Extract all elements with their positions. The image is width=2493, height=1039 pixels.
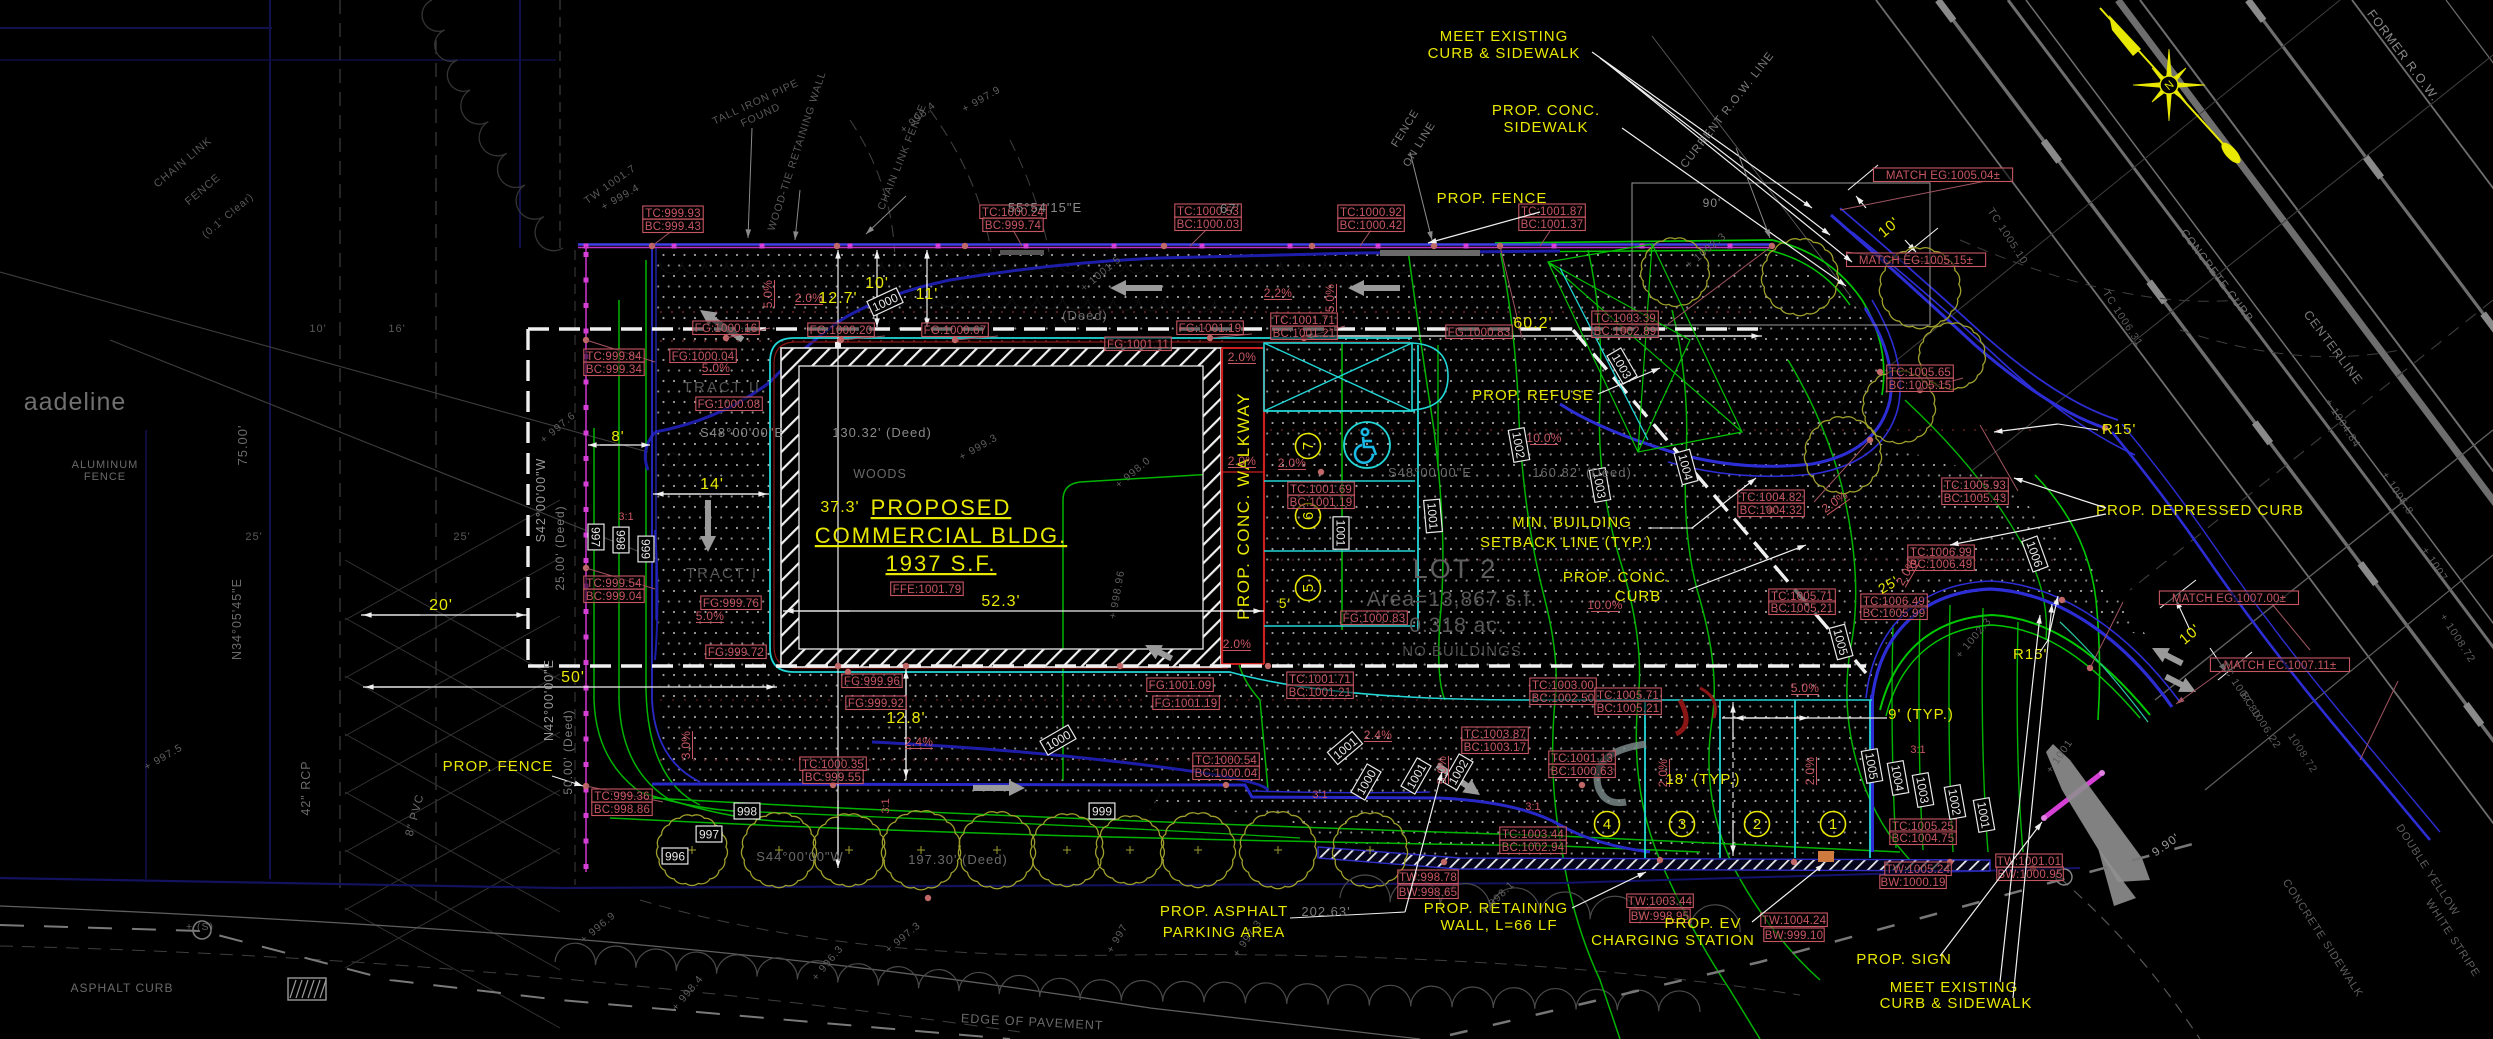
svg-text:BC:1001.21: BC:1001.21	[1273, 328, 1336, 340]
svg-text:MATCH EG:1005.04±: MATCH EG:1005.04±	[1886, 170, 2000, 182]
svg-text:997: 997	[589, 527, 603, 547]
svg-text:TC:1001.71: TC:1001.71	[1289, 674, 1351, 686]
svg-text:67': 67'	[1220, 201, 1240, 216]
svg-text:TC:1005.71: TC:1005.71	[1597, 690, 1659, 702]
svg-text:3:1: 3:1	[1525, 801, 1540, 813]
svg-text:5.0%: 5.0%	[761, 280, 775, 309]
svg-text:PROPOSED: PROPOSED	[871, 495, 1012, 520]
svg-text:PROP. FENCE: PROP. FENCE	[1437, 190, 1548, 207]
svg-text:5.0%: 5.0%	[696, 609, 725, 623]
svg-text:5: 5	[1300, 584, 1317, 592]
svg-text:TW:998.78: TW:998.78	[1399, 872, 1457, 884]
svg-text:TW:1005.24: TW:1005.24	[1886, 864, 1951, 876]
svg-text:TRACT I: TRACT I	[686, 565, 758, 582]
svg-text:TW:1001.01: TW:1001.01	[1997, 856, 2061, 868]
svg-text:S42°00'00"W: S42°00'00"W	[534, 458, 548, 543]
svg-text:ASPHALT CURB: ASPHALT CURB	[71, 981, 174, 995]
svg-text:TC:1003.00: TC:1003.00	[1532, 680, 1594, 692]
svg-text:MATCH EG:1007.00±: MATCH EG:1007.00±	[2172, 593, 2286, 605]
svg-text:BC:998.86: BC:998.86	[594, 804, 650, 816]
svg-text:2.0%: 2.0%	[1278, 456, 1307, 470]
svg-text:55°54'15"E: 55°54'15"E	[1008, 200, 1082, 215]
svg-text:S44°00'00"W: S44°00'00"W	[756, 849, 844, 864]
svg-text:BC:1002.94: BC:1002.94	[1502, 842, 1565, 854]
svg-text:TC:1005.93: TC:1005.93	[1944, 480, 2006, 492]
svg-text:FENCE: FENCE	[84, 471, 126, 483]
svg-text:BC:999.55: BC:999.55	[805, 772, 861, 784]
svg-text:BC:1005.15: BC:1005.15	[1889, 380, 1952, 392]
svg-text:BC:999.04: BC:999.04	[586, 591, 643, 603]
svg-text:FG:999.72: FG:999.72	[708, 647, 764, 659]
svg-text:TRACT II: TRACT II	[683, 379, 761, 396]
svg-text:PROP. EV: PROP. EV	[1665, 915, 1742, 932]
svg-text:10.0%: 10.0%	[1526, 431, 1562, 445]
svg-text:WALL, L=66 LF: WALL, L=66 LF	[1440, 917, 1557, 934]
svg-text:1937 S.F.: 1937 S.F.	[886, 551, 997, 576]
svg-text:TC:1003.44: TC:1003.44	[1502, 829, 1564, 841]
svg-text:BC:1005.21: BC:1005.21	[1597, 703, 1660, 715]
svg-text:TC:1003.39: TC:1003.39	[1594, 313, 1656, 325]
svg-text:BC:1002.50: BC:1002.50	[1532, 693, 1595, 705]
svg-text:FG:1001.19: FG:1001.19	[1155, 698, 1218, 710]
svg-text:999: 999	[639, 539, 653, 559]
svg-text:FG:1001.19: FG:1001.19	[1179, 323, 1242, 335]
svg-text:8': 8'	[611, 428, 624, 445]
svg-text:25': 25'	[245, 531, 262, 543]
svg-text:TC:999.93: TC:999.93	[645, 208, 701, 220]
svg-text:SETBACK LINE (TYP.): SETBACK LINE (TYP.)	[1480, 534, 1652, 551]
svg-text:BC:1005.21: BC:1005.21	[1771, 603, 1834, 615]
svg-text:997: 997	[699, 828, 719, 842]
svg-text:MATCH EG:1005.15±: MATCH EG:1005.15±	[1859, 255, 1973, 267]
svg-text:3:1: 3:1	[1910, 744, 1925, 756]
svg-text:MEET EXISTING: MEET EXISTING	[1440, 28, 1569, 45]
svg-text:MATCH EC:1007.11±: MATCH EC:1007.11±	[2224, 660, 2337, 672]
svg-text:FG:1000.16: FG:1000.16	[695, 323, 758, 335]
svg-text:FG:999.92: FG:999.92	[848, 698, 904, 710]
svg-text:TC:1000.92: TC:1000.92	[1340, 207, 1402, 219]
svg-text:202.63': 202.63'	[1301, 904, 1350, 919]
svg-text:52.3': 52.3'	[981, 593, 1020, 610]
svg-text:FG:1001.09: FG:1001.09	[1149, 680, 1212, 692]
svg-text:TC:1000.35: TC:1000.35	[802, 759, 864, 771]
svg-text:BC:999.34: BC:999.34	[586, 364, 643, 376]
svg-text:996: 996	[665, 850, 685, 864]
svg-text:2: 2	[1753, 816, 1761, 833]
svg-text:BC:1002.89: BC:1002.89	[1594, 326, 1657, 338]
svg-text:42" RCP: 42" RCP	[299, 760, 313, 815]
svg-text:2.0%: 2.0%	[1223, 637, 1252, 651]
svg-text:2.2%: 2.2%	[1264, 286, 1293, 300]
svg-text:0.318 ac.: 0.318 ac.	[1409, 614, 1504, 637]
svg-text:CHARGING STATION: CHARGING STATION	[1591, 932, 1755, 949]
svg-text:BW:998.65: BW:998.65	[1399, 887, 1458, 899]
svg-text:3:1: 3:1	[1312, 789, 1327, 801]
svg-text:PROP. CONC.: PROP. CONC.	[1492, 102, 1600, 119]
svg-text:SIDEWALK: SIDEWALK	[1504, 119, 1589, 136]
svg-text:MIN. BUILDING: MIN. BUILDING	[1512, 514, 1632, 531]
svg-text:N34°05'45"E: N34°05'45"E	[230, 578, 244, 660]
svg-text:75.00': 75.00'	[235, 424, 250, 465]
svg-text:999: 999	[1092, 805, 1112, 819]
svg-text:FG:1001.11: FG:1001.11	[1107, 339, 1169, 351]
svg-text:50': 50'	[561, 669, 585, 686]
svg-text:LOT 2: LOT 2	[1413, 554, 1498, 584]
svg-text:aadeline: aadeline	[24, 388, 127, 416]
svg-text:9' (TYP.): 9' (TYP.)	[1888, 706, 1954, 723]
svg-text:CURB & SIDEWALK: CURB & SIDEWALK	[1880, 995, 2033, 1012]
svg-text:90': 90'	[1703, 196, 1722, 210]
svg-text:50.00' (Deed): 50.00' (Deed)	[561, 709, 575, 794]
svg-text:BC:1003.17: BC:1003.17	[1464, 742, 1527, 754]
svg-text:3:1: 3:1	[880, 798, 892, 813]
svg-text:PROP. CONC.: PROP. CONC.	[1563, 569, 1671, 586]
svg-text:S48°00'00"E: S48°00'00"E	[700, 425, 784, 440]
svg-text:130.32' (Deed): 130.32' (Deed)	[832, 425, 932, 440]
svg-text:BC:1001.21: BC:1001.21	[1289, 687, 1352, 699]
svg-text:FFE:1001.79: FFE:1001.79	[893, 584, 962, 596]
svg-text:TC:999.54: TC:999.54	[586, 578, 642, 590]
svg-text:COMMERCIAL BLDG.: COMMERCIAL BLDG.	[815, 523, 1067, 548]
svg-text:NO BUILDINGS: NO BUILDINGS	[1402, 643, 1522, 660]
svg-text:PROP. REFUSE: PROP. REFUSE	[1472, 387, 1594, 404]
svg-text:60.2': 60.2'	[1513, 315, 1552, 332]
svg-text:BC:1006.49: BC:1006.49	[1910, 559, 1973, 571]
svg-text:7: 7	[1300, 442, 1317, 450]
svg-text:N42°00'00"E: N42°00'00"E	[542, 659, 556, 741]
svg-text:BC:1000.42: BC:1000.42	[1340, 220, 1403, 232]
svg-text:BC:1001.37: BC:1001.37	[1521, 219, 1584, 231]
svg-text:TC:1001.71: TC:1001.71	[1273, 315, 1335, 327]
svg-text:(Deed): (Deed)	[1062, 308, 1108, 323]
svg-text:BC:1001.19: BC:1001.19	[1290, 497, 1353, 509]
svg-text:TC:1003.87: TC:1003.87	[1464, 729, 1526, 741]
svg-text:FG:1000.20: FG:1000.20	[810, 325, 873, 337]
svg-text:12.7': 12.7'	[818, 290, 857, 307]
svg-text:10': 10'	[309, 323, 326, 335]
svg-text:MEET EXISTING: MEET EXISTING	[1890, 979, 2019, 996]
svg-text:FG:1000.67: FG:1000.67	[924, 325, 987, 337]
svg-text:16': 16'	[388, 323, 405, 335]
svg-text:4: 4	[1603, 816, 1611, 833]
svg-text:2.0%: 2.0%	[1228, 350, 1257, 364]
svg-text:Area=13,867 s.f.: Area=13,867 s.f.	[1367, 588, 1538, 611]
svg-text:BC:1000.03: BC:1000.03	[1177, 219, 1240, 231]
svg-text:20': 20'	[429, 597, 453, 614]
svg-text:WOODS: WOODS	[853, 467, 907, 481]
svg-text:FG:1000.08: FG:1000.08	[698, 399, 761, 411]
svg-text:2.4%: 2.4%	[1364, 728, 1393, 742]
svg-text:+ (S): + (S)	[186, 921, 214, 933]
svg-text:TC:1000.54: TC:1000.54	[1195, 755, 1257, 767]
svg-text:TC:1001.69: TC:1001.69	[1290, 484, 1352, 496]
svg-text:CURB: CURB	[1615, 588, 1662, 605]
svg-text:3.0%: 3.0%	[679, 731, 693, 760]
svg-text:1001: 1001	[1424, 502, 1440, 530]
svg-text:TC:1004.82: TC:1004.82	[1740, 492, 1802, 504]
svg-text:25.00' (Deed): 25.00' (Deed)	[553, 505, 567, 590]
svg-text:PROP. DEPRESSED CURB: PROP. DEPRESSED CURB	[2096, 502, 2304, 519]
svg-text:ALUMINUM: ALUMINUM	[72, 459, 139, 471]
svg-text:25': 25'	[453, 531, 470, 543]
svg-text:14': 14'	[700, 476, 724, 493]
svg-text:TC:999.36: TC:999.36	[594, 791, 650, 803]
svg-text:BC:1004.32: BC:1004.32	[1740, 505, 1803, 517]
svg-text:12.8': 12.8'	[886, 710, 925, 727]
svg-text:PARKING AREA: PARKING AREA	[1163, 924, 1286, 941]
svg-text:TC:1001.13: TC:1001.13	[1551, 753, 1613, 765]
svg-text:3: 3	[1678, 816, 1686, 833]
svg-text:998: 998	[737, 805, 757, 819]
svg-text:PROP. FENCE: PROP. FENCE	[443, 758, 554, 775]
svg-text:FG:1000.83: FG:1000.83	[1343, 613, 1406, 625]
svg-text:5.0%: 5.0%	[1791, 681, 1820, 695]
svg-text:6: 6	[1300, 512, 1317, 520]
svg-text:2.0%: 2.0%	[1228, 454, 1257, 468]
svg-text:TW:1004.24: TW:1004.24	[1762, 915, 1827, 927]
svg-text:BW:1000.19: BW:1000.19	[1880, 877, 1945, 889]
svg-text:1: 1	[1829, 816, 1837, 833]
svg-text:2.4%: 2.4%	[905, 735, 934, 749]
svg-text:PROP. ASPHALT: PROP. ASPHALT	[1160, 903, 1288, 920]
svg-text:BC:1005.43: BC:1005.43	[1944, 493, 2007, 505]
svg-text:3:1: 3:1	[618, 511, 633, 523]
svg-text:BC:999.74: BC:999.74	[985, 220, 1042, 232]
svg-text:5': 5'	[1279, 595, 1291, 611]
svg-text:R15': R15'	[2102, 421, 2136, 438]
svg-text:BC:999.43: BC:999.43	[645, 221, 701, 233]
svg-text:5.0%: 5.0%	[1323, 284, 1337, 313]
svg-text:BC:1005.99: BC:1005.99	[1863, 608, 1926, 620]
svg-text:BC:1000.04: BC:1000.04	[1195, 768, 1258, 780]
svg-text:5.0%: 5.0%	[702, 361, 731, 375]
svg-text:TW:1003.44: TW:1003.44	[1628, 896, 1693, 908]
svg-text:1001: 1001	[1334, 520, 1348, 547]
svg-text:FG:1000.83: FG:1000.83	[1448, 327, 1511, 339]
svg-text:FG:999.96: FG:999.96	[844, 676, 900, 688]
svg-text:BC:1004.75: BC:1004.75	[1892, 833, 1955, 845]
svg-text:11': 11'	[916, 286, 939, 303]
svg-text:18' (TYP.): 18' (TYP.)	[1665, 771, 1740, 788]
svg-text:PROP. SIGN: PROP. SIGN	[1856, 951, 1952, 968]
svg-text:37.3': 37.3'	[820, 499, 859, 516]
svg-text:TC:999.84: TC:999.84	[586, 351, 642, 363]
svg-text:S48°00'00"E: S48°00'00"E	[1388, 465, 1472, 480]
svg-text:2.0%: 2.0%	[1803, 757, 1817, 786]
svg-text:PROP. CONC. WALKWAY: PROP. CONC. WALKWAY	[1234, 392, 1253, 620]
svg-text:160.82' (Deed): 160.82' (Deed)	[1532, 465, 1632, 480]
svg-text:TC:1001.87: TC:1001.87	[1521, 206, 1583, 218]
svg-text:197.30' (Deed): 197.30' (Deed)	[908, 852, 1008, 867]
svg-text:BW:1000.95: BW:1000.95	[1997, 869, 2062, 881]
svg-text:10': 10'	[865, 275, 889, 292]
svg-text:998: 998	[614, 530, 628, 550]
svg-text:BW:999.10: BW:999.10	[1765, 930, 1824, 942]
svg-text:TC:1005.65: TC:1005.65	[1889, 367, 1951, 379]
svg-text:CURB & SIDEWALK: CURB & SIDEWALK	[1428, 45, 1581, 62]
svg-text:BC:1000.63: BC:1000.63	[1551, 766, 1614, 778]
